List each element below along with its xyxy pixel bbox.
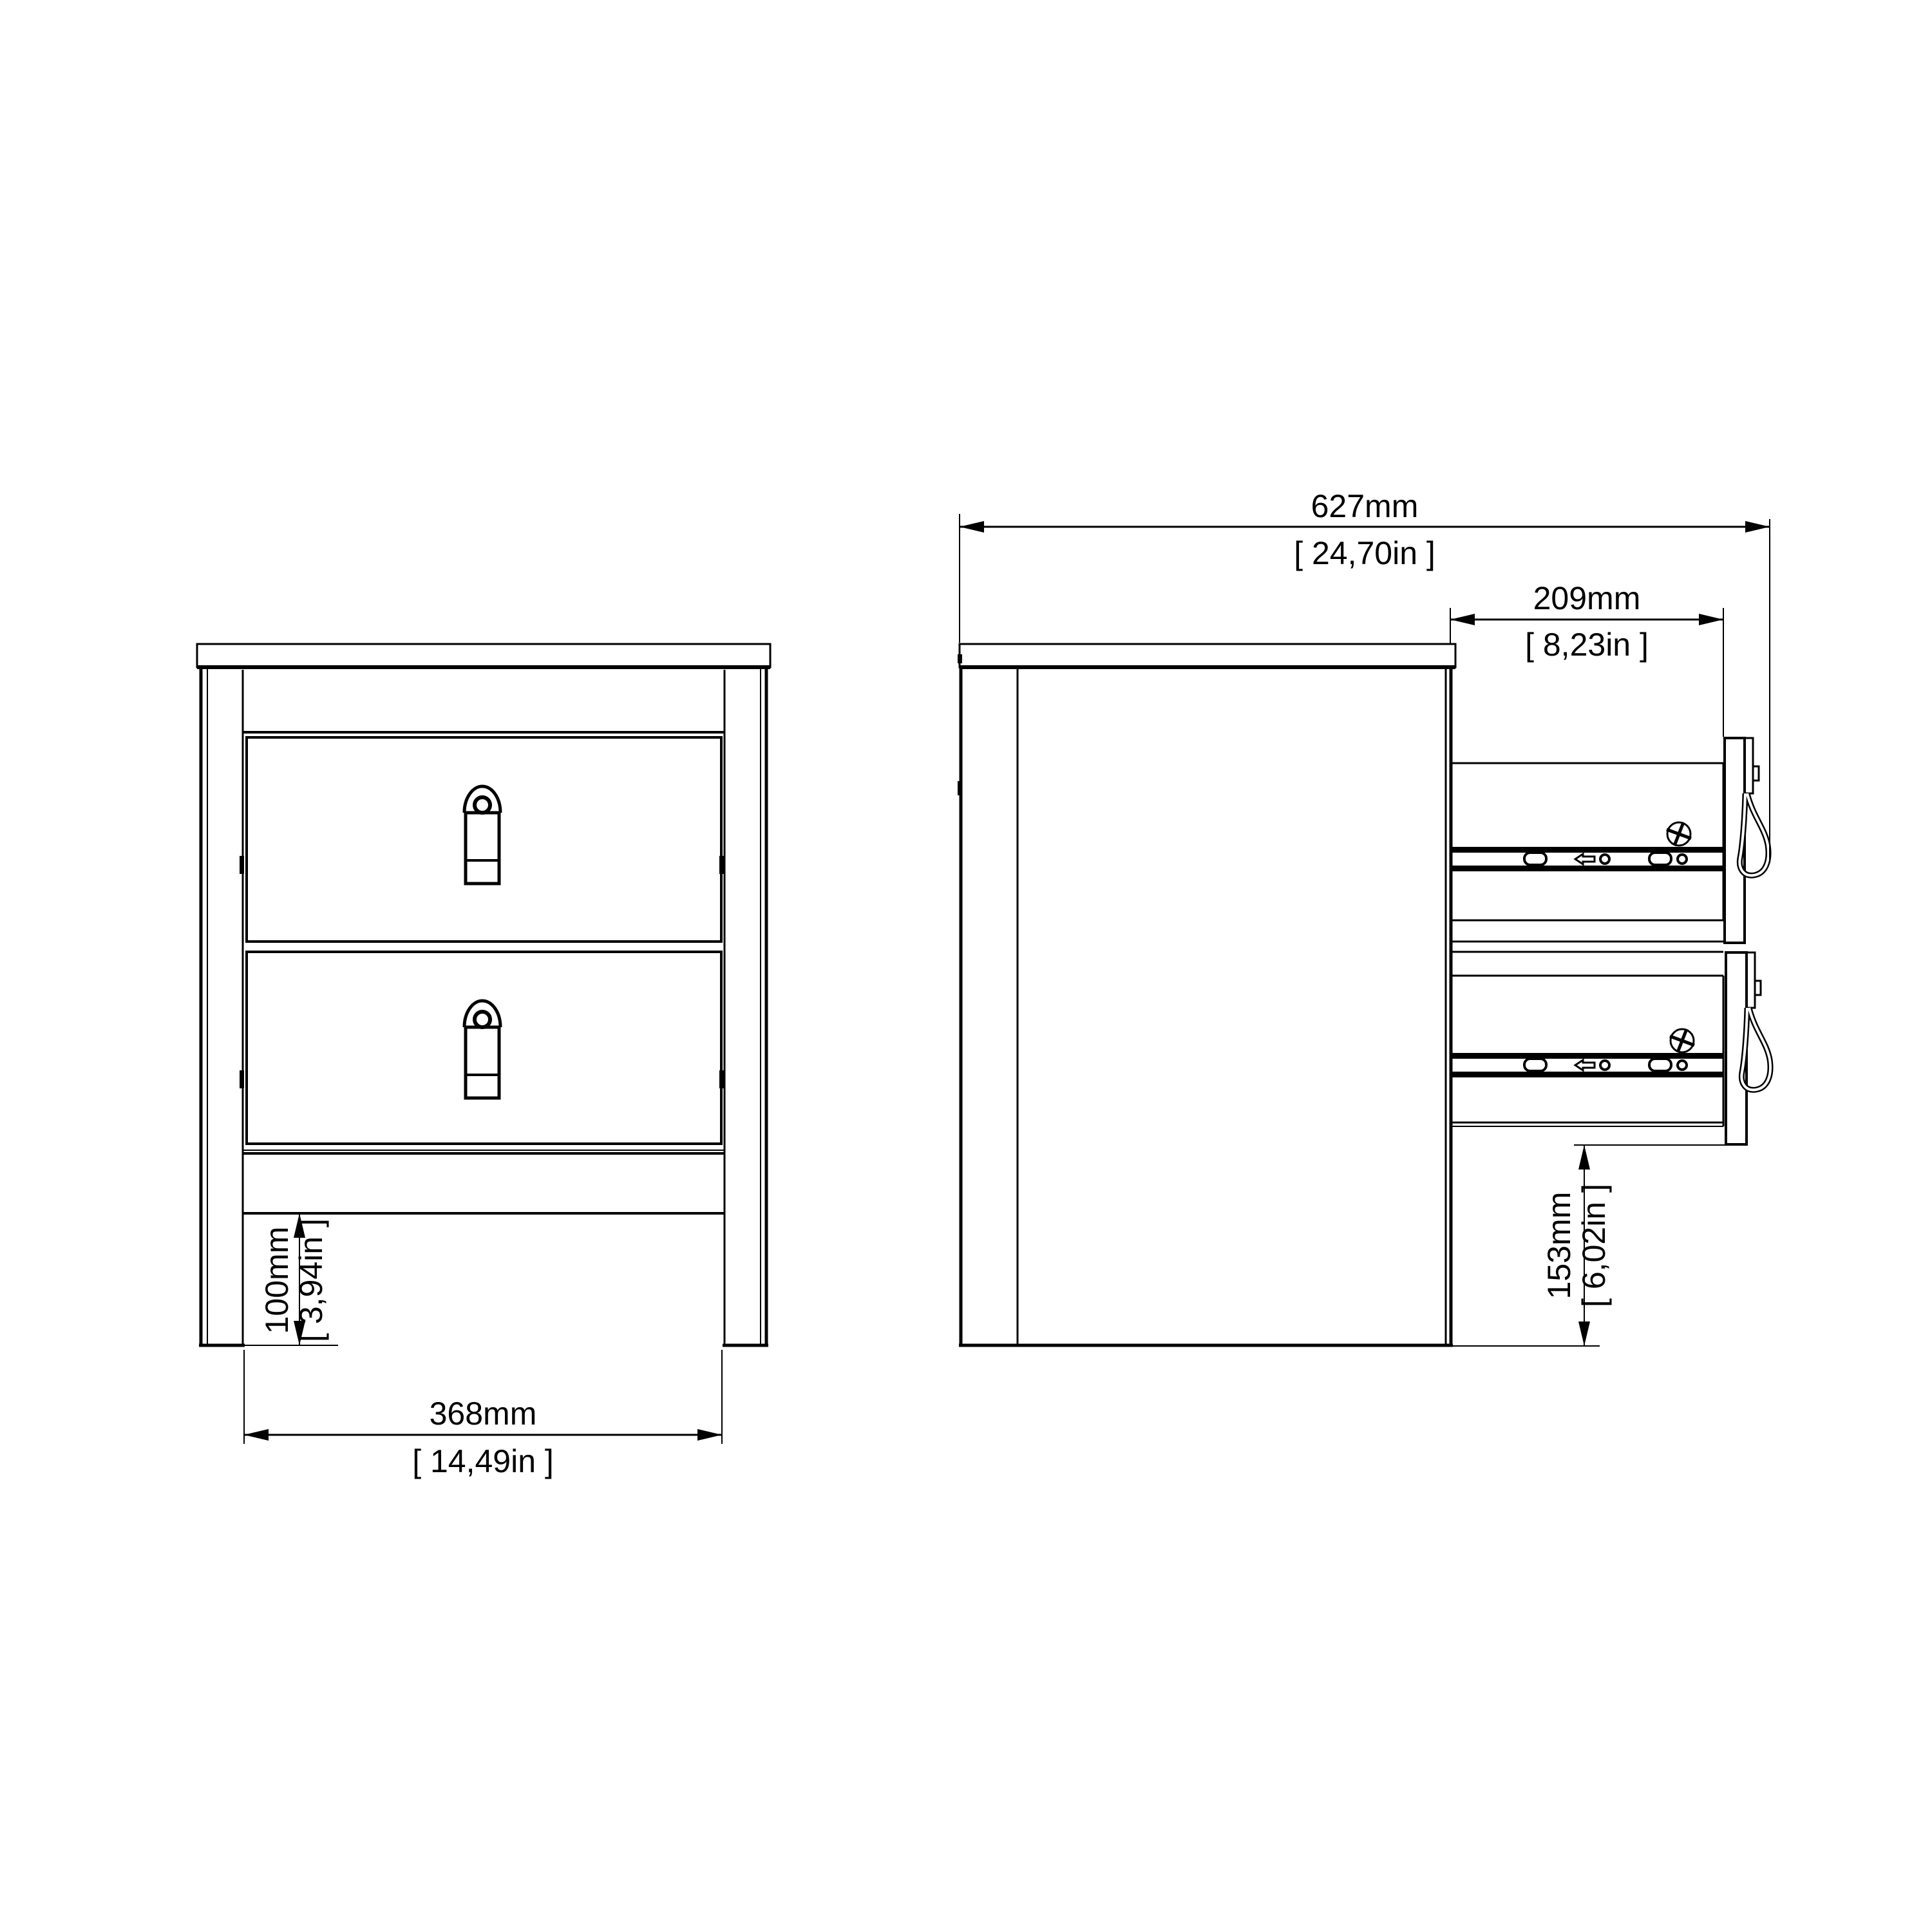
- dimension-label: 209mm: [1533, 580, 1641, 616]
- dimension-label: 627mm: [1311, 488, 1419, 524]
- technical-drawing-page: 627mm [ 24,70in ] 209mm [ 8,23in ] 368mm…: [0, 0, 1932, 1932]
- dimension-label-inches: [ 24,70in ]: [1294, 535, 1435, 571]
- dimension-label: 153mm: [1541, 1192, 1577, 1300]
- dimension-label-inches: [ 8,23in ]: [1525, 627, 1649, 663]
- dimension-label-inches: [ 14,49in ]: [412, 1443, 554, 1479]
- canvas-background: [0, 0, 1932, 1932]
- dimension-label: 368mm: [430, 1396, 537, 1432]
- dimension-label: 100mm: [259, 1227, 295, 1334]
- dimension-label-inches: [ 3,94in ]: [293, 1218, 329, 1342]
- furniture-dimension-drawing: 627mm [ 24,70in ] 209mm [ 8,23in ] 368mm…: [0, 0, 1932, 1932]
- dimension-label-inches: [ 6,02in ]: [1576, 1184, 1612, 1307]
